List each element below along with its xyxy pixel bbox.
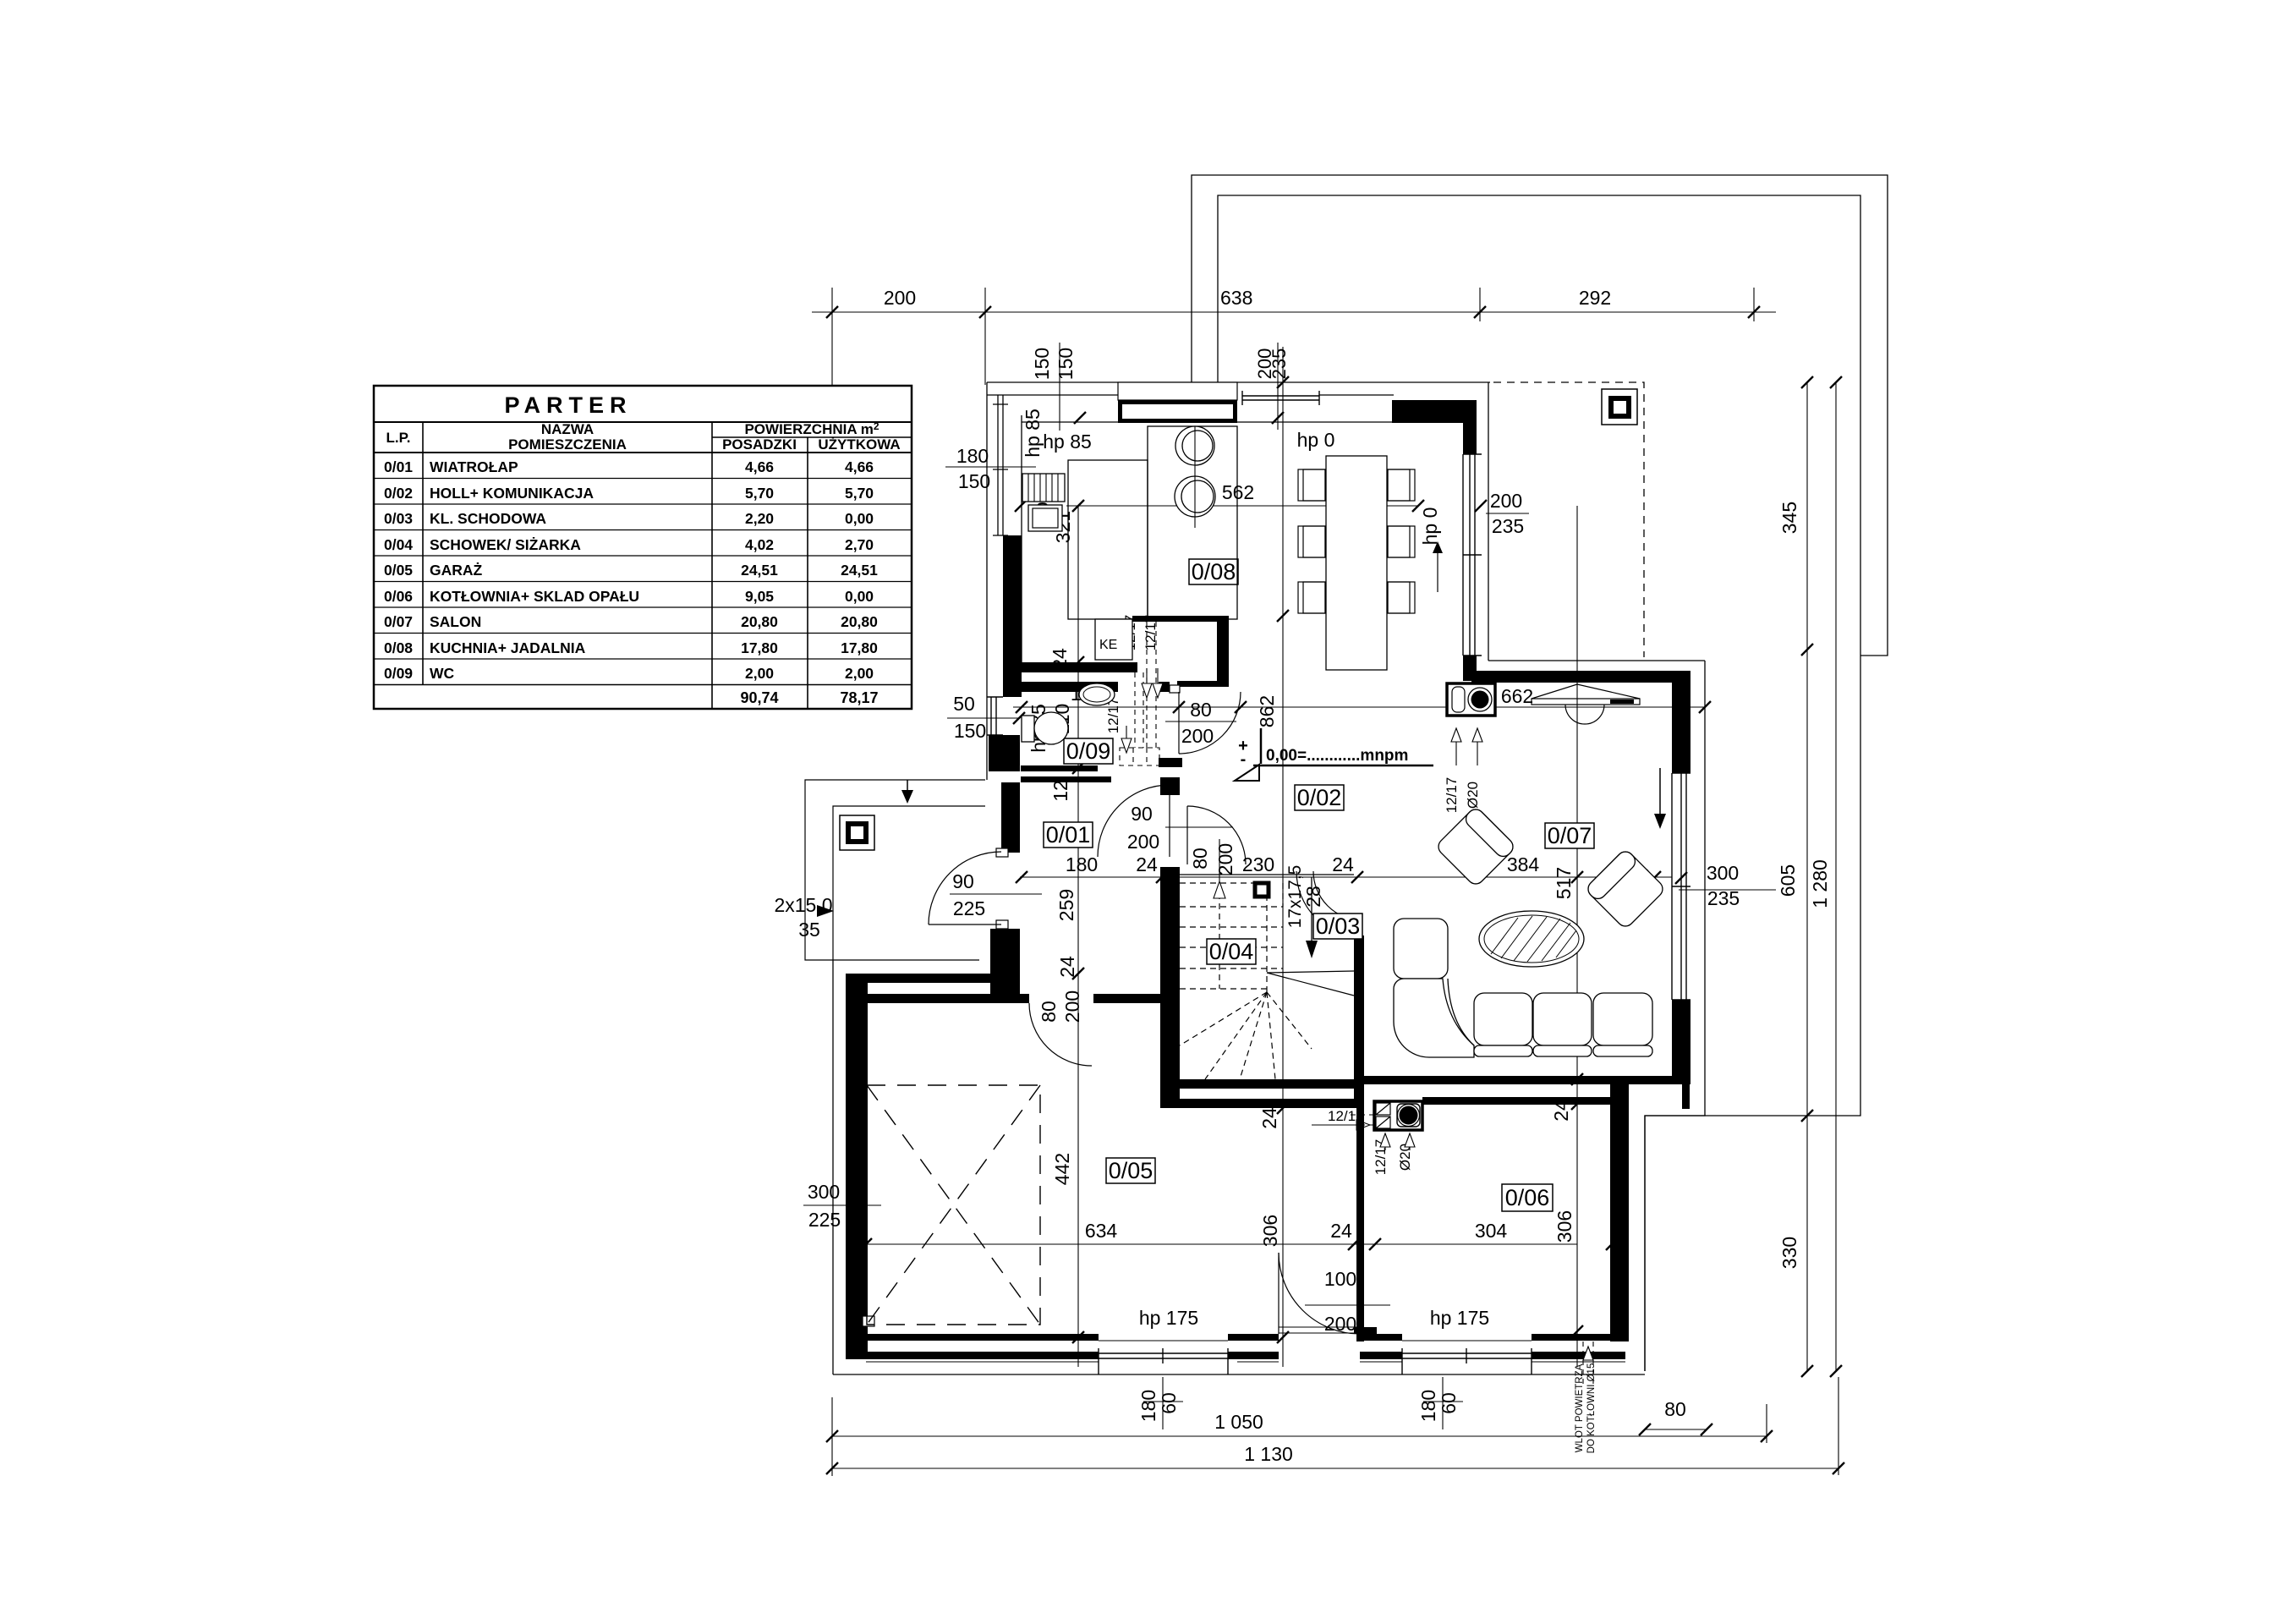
svg-text:hp 175: hp 175: [1139, 1307, 1198, 1329]
svg-text:2,00: 2,00: [845, 665, 874, 682]
svg-text:2,70: 2,70: [845, 536, 874, 553]
svg-text:L.P.: L.P.: [386, 430, 411, 446]
svg-text:Ø20: Ø20: [1397, 1144, 1413, 1171]
svg-text:0/05: 0/05: [384, 562, 413, 579]
svg-text:306: 306: [1553, 1210, 1575, 1243]
svg-text:0/08: 0/08: [384, 639, 413, 656]
svg-text:NAZWA: NAZWA: [541, 421, 594, 437]
svg-text:0/06: 0/06: [1505, 1185, 1550, 1210]
svg-text:0/04: 0/04: [384, 536, 413, 553]
svg-text:0/09: 0/09: [1066, 738, 1111, 764]
svg-text:662: 662: [1501, 685, 1533, 707]
svg-text:0/02: 0/02: [384, 485, 413, 502]
svg-text:200: 200: [1490, 490, 1522, 512]
svg-text:24: 24: [1056, 956, 1078, 978]
svg-text:80: 80: [1664, 1398, 1686, 1420]
svg-text:24,51: 24,51: [741, 562, 778, 579]
svg-text:60: 60: [1158, 1392, 1180, 1414]
svg-text:POWIERZCHNIA m2: POWIERZCHNIA m2: [744, 420, 879, 437]
svg-text:0,00: 0,00: [845, 510, 874, 527]
svg-text:17,80: 17,80: [841, 639, 878, 656]
svg-text:230: 230: [1242, 853, 1274, 875]
svg-text:hp 85: hp 85: [1043, 431, 1092, 453]
svg-text:78,17: 78,17: [840, 689, 878, 706]
svg-text:90: 90: [952, 870, 974, 892]
svg-text:20,80: 20,80: [741, 613, 778, 630]
svg-text:24: 24: [1330, 1220, 1352, 1242]
svg-text:517: 517: [1553, 867, 1575, 899]
svg-text:hp 0: hp 0: [1419, 507, 1441, 546]
svg-text:180: 180: [1066, 853, 1098, 875]
svg-text:0/03: 0/03: [384, 510, 413, 527]
svg-text:200: 200: [1214, 843, 1236, 875]
svg-text:80: 80: [1189, 848, 1211, 870]
svg-text:24: 24: [1332, 853, 1354, 875]
svg-text:0/06: 0/06: [384, 588, 413, 605]
svg-text:24,51: 24,51: [841, 562, 878, 579]
svg-text:442: 442: [1051, 1153, 1073, 1185]
svg-text:50: 50: [953, 693, 975, 715]
svg-text:80: 80: [1038, 1001, 1060, 1023]
svg-text:384: 384: [1507, 853, 1540, 875]
svg-text:225: 225: [953, 897, 985, 919]
svg-text:345: 345: [1778, 502, 1800, 534]
svg-text:17,80: 17,80: [741, 639, 778, 656]
svg-text:WLOT POWIETRZA: WLOT POWIETRZA: [1575, 1363, 1585, 1452]
svg-text:SALON: SALON: [430, 613, 481, 630]
svg-text:200: 200: [1181, 725, 1214, 747]
svg-text:200: 200: [1061, 990, 1083, 1023]
svg-text:5,70: 5,70: [845, 485, 874, 502]
svg-text:KOTŁOWNIA+ SKLAD OPAŁU: KOTŁOWNIA+ SKLAD OPAŁU: [430, 588, 639, 605]
svg-text:POSADZKI: POSADZKI: [722, 436, 797, 453]
svg-text:225: 225: [808, 1209, 841, 1231]
svg-text:5,70: 5,70: [745, 485, 774, 502]
svg-text:200: 200: [884, 287, 916, 309]
svg-text:90,74: 90,74: [740, 689, 778, 706]
svg-text:235: 235: [1492, 515, 1524, 537]
svg-text:2,20: 2,20: [745, 510, 774, 527]
svg-text:180: 180: [1417, 1390, 1439, 1422]
svg-text:0/03: 0/03: [1316, 913, 1361, 939]
svg-text:9,05: 9,05: [745, 588, 774, 605]
svg-text:hp 85: hp 85: [1022, 409, 1044, 458]
svg-text:24: 24: [1136, 853, 1158, 875]
svg-text:292: 292: [1579, 287, 1611, 309]
svg-text:12: 12: [1049, 780, 1071, 802]
svg-text:35: 35: [798, 919, 820, 941]
svg-text:-: -: [1241, 750, 1247, 769]
svg-text:DO KOTŁOWNI Ø15: DO KOTŁOWNI Ø15: [1586, 1363, 1597, 1454]
svg-text:0/04: 0/04: [1209, 939, 1254, 964]
svg-text:20,80: 20,80: [841, 613, 878, 630]
svg-text:259: 259: [1055, 889, 1077, 921]
svg-text:605: 605: [1777, 864, 1799, 897]
svg-text:0,00: 0,00: [845, 588, 874, 605]
svg-text:0/07: 0/07: [1548, 823, 1592, 848]
svg-text:100: 100: [1324, 1268, 1356, 1290]
svg-text:0/07: 0/07: [384, 613, 413, 630]
svg-text:562: 562: [1222, 481, 1254, 503]
svg-text:hp 175: hp 175: [1430, 1307, 1489, 1329]
svg-text:80: 80: [1190, 699, 1212, 721]
svg-text:0,00=............mnpm: 0,00=............mnpm: [1266, 747, 1408, 765]
svg-text:SCHOWEK/ SIŻARKA: SCHOWEK/ SIŻARKA: [430, 536, 581, 553]
svg-text:WIATROŁAP: WIATROŁAP: [430, 458, 518, 475]
svg-text:UŻYTKOWA: UŻYTKOWA: [818, 436, 900, 453]
svg-text:KL. SCHODOWA: KL. SCHODOWA: [430, 510, 546, 527]
svg-text:1 050: 1 050: [1214, 1411, 1263, 1433]
svg-text:300: 300: [1707, 862, 1739, 884]
svg-text:4,66: 4,66: [745, 458, 774, 475]
svg-text:1 280: 1 280: [1809, 859, 1831, 908]
svg-text:150: 150: [1055, 348, 1077, 380]
svg-text:WC: WC: [430, 665, 455, 682]
svg-text:0/02: 0/02: [1297, 785, 1342, 810]
svg-text:150: 150: [958, 470, 990, 492]
svg-text:235: 235: [1269, 348, 1290, 380]
svg-text:90: 90: [1131, 803, 1153, 825]
svg-text:300: 300: [808, 1181, 840, 1203]
svg-text:0/09: 0/09: [384, 665, 413, 682]
svg-text:Ø20: Ø20: [1465, 782, 1481, 809]
svg-text:PARTER: PARTER: [504, 392, 632, 418]
svg-text:KUCHNIA+ JADALNIA: KUCHNIA+ JADALNIA: [430, 639, 586, 656]
svg-text:KE: KE: [1099, 638, 1117, 652]
svg-text:180: 180: [956, 445, 989, 467]
svg-text:150: 150: [954, 720, 986, 742]
svg-text:330: 330: [1778, 1237, 1800, 1269]
svg-text:862: 862: [1256, 695, 1278, 727]
svg-text:HOLL+ KOMUNIKACJA: HOLL+ KOMUNIKACJA: [430, 485, 594, 502]
svg-text:0/01: 0/01: [384, 458, 413, 475]
svg-text:180: 180: [1137, 1390, 1159, 1422]
svg-text:POMIESZCZENIA: POMIESZCZENIA: [508, 436, 627, 453]
svg-text:12/17: 12/17: [1444, 777, 1460, 814]
svg-text:1 130: 1 130: [1244, 1443, 1293, 1465]
svg-text:4,66: 4,66: [845, 458, 874, 475]
svg-text:304: 304: [1475, 1220, 1508, 1242]
svg-text:0/01: 0/01: [1046, 822, 1091, 848]
svg-text:24: 24: [1258, 1107, 1280, 1129]
svg-text:60: 60: [1438, 1392, 1460, 1414]
svg-text:638: 638: [1220, 287, 1252, 309]
svg-text:hp 0: hp 0: [1297, 429, 1335, 451]
svg-text:200: 200: [1127, 831, 1159, 853]
svg-text:150: 150: [1031, 348, 1053, 380]
svg-text:306: 306: [1259, 1215, 1281, 1247]
svg-text:634: 634: [1085, 1220, 1118, 1242]
svg-text:0/08: 0/08: [1192, 559, 1236, 584]
svg-text:2,00: 2,00: [745, 665, 774, 682]
svg-text:4,02: 4,02: [745, 536, 774, 553]
svg-text:235: 235: [1707, 887, 1740, 909]
svg-text:GARAŻ: GARAŻ: [430, 562, 483, 579]
svg-text:0/05: 0/05: [1109, 1158, 1153, 1183]
